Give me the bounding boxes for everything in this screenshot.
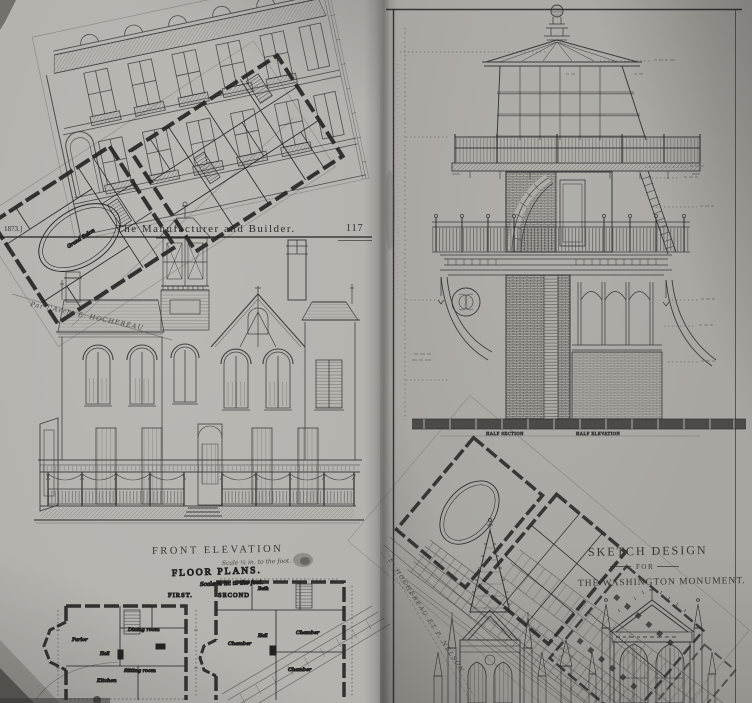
svg-text:FRONT ELEVATION: FRONT ELEVATION bbox=[152, 544, 284, 557]
journal-title: The Manufacturer and Builder. bbox=[116, 223, 296, 235]
svg-text:Dining room: Dining room bbox=[127, 627, 160, 633]
house-floor-plans-drawing: FLOOR PLANS. Scale ¼ in. to the foot. FI… bbox=[36, 566, 352, 700]
svg-text:THE WASHINGTON MONUMENT.: THE WASHINGTON MONUMENT. bbox=[578, 576, 746, 589]
svg-text:Hall: Hall bbox=[99, 651, 110, 657]
svg-text:Sitting room: Sitting room bbox=[124, 668, 156, 674]
svg-text:Chamber: Chamber bbox=[296, 630, 320, 636]
front-elevation-caption: FRONT ELEVATION Scale ¼ in. to the foot. bbox=[152, 544, 291, 567]
artwork-layer: Grand Salon Par l'Arch. E. HOCHEREAU bbox=[0, 0, 752, 703]
svg-text:Chamber: Chamber bbox=[228, 641, 252, 647]
svg-text:HALF ELEVATION: HALF ELEVATION bbox=[576, 431, 621, 436]
svg-text:HALF SECTION: HALF SECTION bbox=[486, 431, 524, 436]
monument-title: SKETCH DESIGN FOR THE WASHINGTON MONUMEN… bbox=[578, 543, 746, 589]
scanned-architectural-collage: Grand Salon Par l'Arch. E. HOCHEREAU bbox=[0, 0, 752, 703]
svg-text:SKETCH DESIGN: SKETCH DESIGN bbox=[588, 543, 708, 559]
svg-text:FLOOR PLANS.: FLOOR PLANS. bbox=[172, 566, 262, 579]
svg-text:SECOND: SECOND bbox=[218, 592, 250, 599]
salon-room-label: Grand Salon bbox=[66, 228, 96, 250]
svg-text:FIRST.: FIRST. bbox=[168, 592, 193, 599]
journal-page-number: 117 bbox=[346, 223, 364, 234]
journal-header: 1873.] The Manufacturer and Builder. 117 bbox=[4, 223, 364, 235]
svg-text:Parlor: Parlor bbox=[71, 637, 88, 643]
diagonal-stair-band-left bbox=[222, 606, 390, 703]
svg-text:Hall: Hall bbox=[257, 633, 268, 639]
svg-text:FOR: FOR bbox=[636, 563, 654, 571]
journal-year: 1873.] bbox=[4, 225, 22, 233]
svg-text:Kitchen: Kitchen bbox=[96, 678, 117, 684]
lighthouse-section-drawing: HALF SECTION HALF ELEVATION bbox=[400, 5, 746, 436]
svg-text:Bath: Bath bbox=[257, 586, 269, 592]
